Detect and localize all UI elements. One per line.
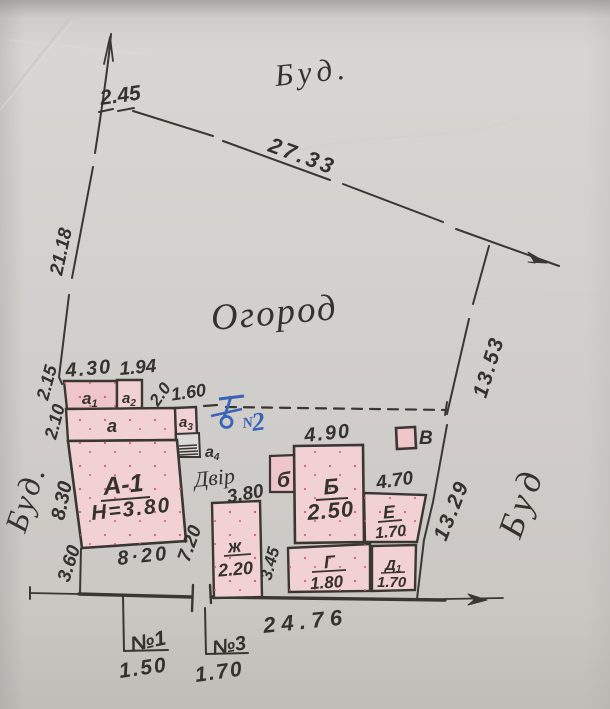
svg-text:а: а [107, 416, 117, 436]
svg-text:1.80: 1.80 [309, 572, 344, 593]
svg-text:2.20: 2.20 [216, 558, 254, 581]
svg-text:1.70: 1.70 [377, 574, 407, 591]
svg-text:б: б [277, 469, 291, 492]
svg-text:Б: Б [322, 473, 340, 499]
svg-text:В: В [419, 428, 433, 449]
svg-text:2.50: 2.50 [305, 496, 355, 525]
svg-text:1.70: 1.70 [374, 523, 407, 543]
svg-text:4.30: 4.30 [64, 356, 114, 382]
svg-text:1.94: 1.94 [119, 356, 158, 380]
